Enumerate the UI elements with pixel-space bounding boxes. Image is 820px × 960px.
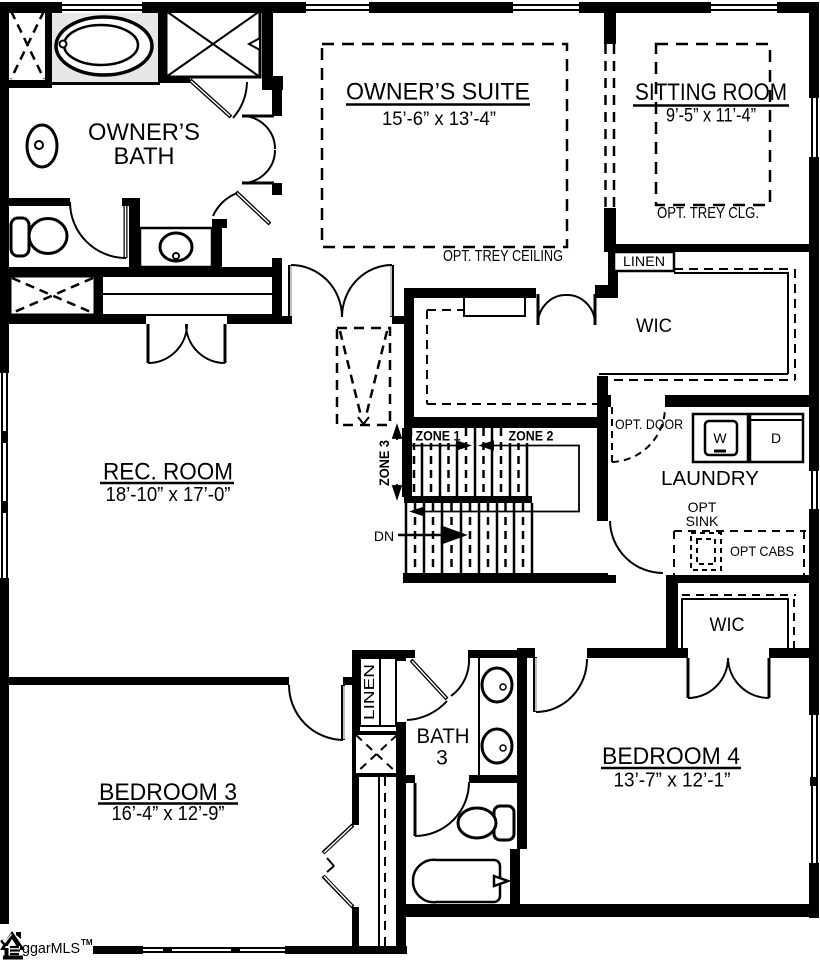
svg-text:BEDROOM 4: BEDROOM 4 (602, 743, 740, 770)
svg-text:OWNER’S: OWNER’S (88, 119, 200, 146)
svg-text:ZONE 2: ZONE 2 (509, 428, 554, 444)
svg-text:LINEN: LINEN (623, 254, 665, 269)
svg-text:LAUNDRY: LAUNDRY (661, 468, 759, 490)
svg-text:ZONE 3: ZONE 3 (376, 440, 392, 486)
svg-text:SITTING ROOM: SITTING ROOM (635, 79, 787, 106)
svg-text:18’-10” x 17’-0”: 18’-10” x 17’-0” (106, 484, 231, 506)
svg-text:BEDROOM 3: BEDROOM 3 (99, 779, 237, 806)
svg-text:WIC: WIC (710, 615, 745, 636)
svg-text:LINEN: LINEN (362, 664, 378, 720)
svg-text:3: 3 (436, 747, 448, 770)
svg-text:BATH: BATH (114, 143, 175, 170)
svg-text:OPT CABS: OPT CABS (730, 543, 794, 559)
svg-text:OPT. DOOR: OPT. DOOR (615, 416, 683, 432)
svg-text:OPT. TREY CEILING: OPT. TREY CEILING (443, 248, 563, 265)
svg-text:D: D (771, 430, 781, 446)
svg-text:REC. ROOM: REC. ROOM (103, 459, 233, 486)
svg-text:BATH: BATH (417, 725, 470, 748)
svg-text:SINK: SINK (686, 513, 719, 529)
svg-text:9’-5” x 11’-4”: 9’-5” x 11’-4” (666, 106, 756, 127)
svg-text:ZONE 1: ZONE 1 (416, 428, 461, 444)
svg-text:OWNER’S SUITE: OWNER’S SUITE (346, 79, 530, 106)
svg-text:15’-6” x 13’-4”: 15’-6” x 13’-4” (382, 109, 496, 130)
svg-text:16’-4” x 12’-9”: 16’-4” x 12’-9” (112, 803, 225, 825)
svg-text:OPT. TREY CLG.: OPT. TREY CLG. (657, 205, 759, 222)
svg-text:TM: TM (81, 938, 93, 947)
svg-text:ggarMLS: ggarMLS (22, 940, 80, 957)
svg-text:13’-7” x 12’-1”: 13’-7” x 12’-1” (614, 770, 731, 792)
svg-text:WIC: WIC (636, 316, 672, 337)
svg-text:DN: DN (374, 528, 394, 544)
svg-text:W: W (713, 430, 727, 446)
